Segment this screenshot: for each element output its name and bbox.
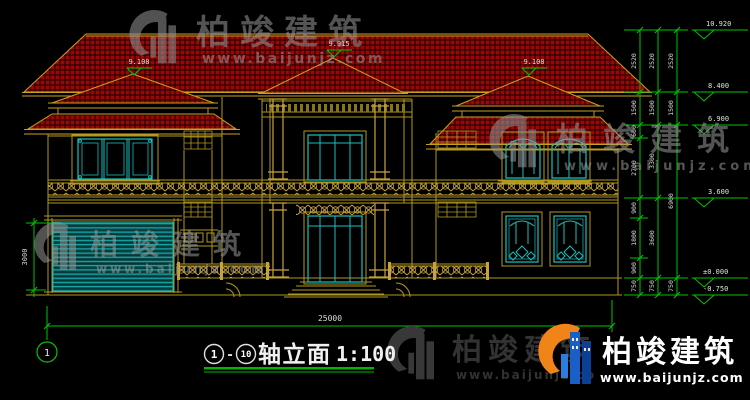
dim-middle-3600: 3600: [648, 230, 656, 246]
elevation-3600: 3.600: [708, 188, 729, 196]
cad-drawing-viewport: 9.108 9.915 9.108 2520 1500 600 2700 900…: [0, 0, 750, 400]
roof-elevation-left: 9.108: [128, 58, 149, 66]
garage-height-dim: 3000: [21, 249, 29, 266]
title-underline-thin: [204, 372, 374, 373]
title-axis-start: 1: [211, 348, 218, 361]
brand-logo-text: 柏竣建筑: [602, 335, 738, 370]
title-underline-thick: [204, 367, 374, 370]
brand-logo-url: www.baijunjz.com: [600, 370, 744, 385]
watermark-url: www.baijunjz.com: [96, 262, 267, 276]
grid-window-lower-left: [184, 202, 212, 217]
total-width-dim: 25000: [318, 314, 342, 323]
drawing-title: 轴立面: [258, 341, 332, 368]
grid-window-lower-right: [438, 202, 476, 217]
right-wing-windows-lower: [502, 212, 590, 266]
axis-number: 1: [44, 348, 50, 359]
balcony-door: [308, 135, 362, 180]
watermark-brand: 柏竣建筑: [556, 120, 744, 158]
dim-middle-750: 750: [648, 280, 656, 292]
title-separator: -: [226, 348, 234, 363]
dim-inner-2520: 2520: [630, 53, 638, 69]
watermark-brand: 柏竣建筑: [196, 13, 372, 53]
dim-inner-1500: 1500: [630, 100, 638, 116]
watermark-url: www.baijunjz.com: [564, 159, 750, 174]
entrance-door: [308, 216, 362, 282]
title-block: 1 - 10 轴立面 1:100: [204, 341, 396, 373]
elevation-0000: ±0.000: [703, 268, 728, 276]
watermark-url: www.baijunjz.com: [202, 51, 385, 67]
balcony-railing: [48, 183, 618, 215]
dim-outer-1500: 1500: [667, 100, 675, 116]
roof-elevation-right: 9.108: [523, 58, 544, 66]
left-wing-window: [72, 135, 158, 183]
dim-inner-900b: 900: [630, 262, 638, 274]
dim-outer-6900: 6900: [667, 193, 675, 209]
elevation-neg750: -0.750: [703, 285, 728, 293]
dim-outer-2520: 2520: [667, 53, 675, 69]
dim-middle-2520: 2520: [648, 53, 656, 69]
porch-lower-lattice: [296, 203, 374, 215]
elevation-8400: 8.400: [708, 82, 729, 90]
dim-inner-1800: 1800: [630, 230, 638, 246]
cad-canvas: 9.108 9.915 9.108 2520 1500 600 2700 900…: [0, 0, 750, 400]
watermark-brand: 柏竣建筑: [90, 228, 254, 261]
dim-middle-1500: 1500: [648, 100, 656, 116]
dim-outer-750: 750: [667, 280, 675, 292]
dim-inner-750: 750: [630, 280, 638, 292]
elevation-10920: 10.920: [706, 20, 731, 28]
dim-inner-900a: 900: [630, 202, 638, 214]
drawing-scale: 1:100: [336, 342, 396, 366]
title-axis-end: 10: [241, 350, 252, 360]
porch-beam-dentils: [266, 104, 408, 112]
axis-marker: 1: [37, 342, 57, 362]
